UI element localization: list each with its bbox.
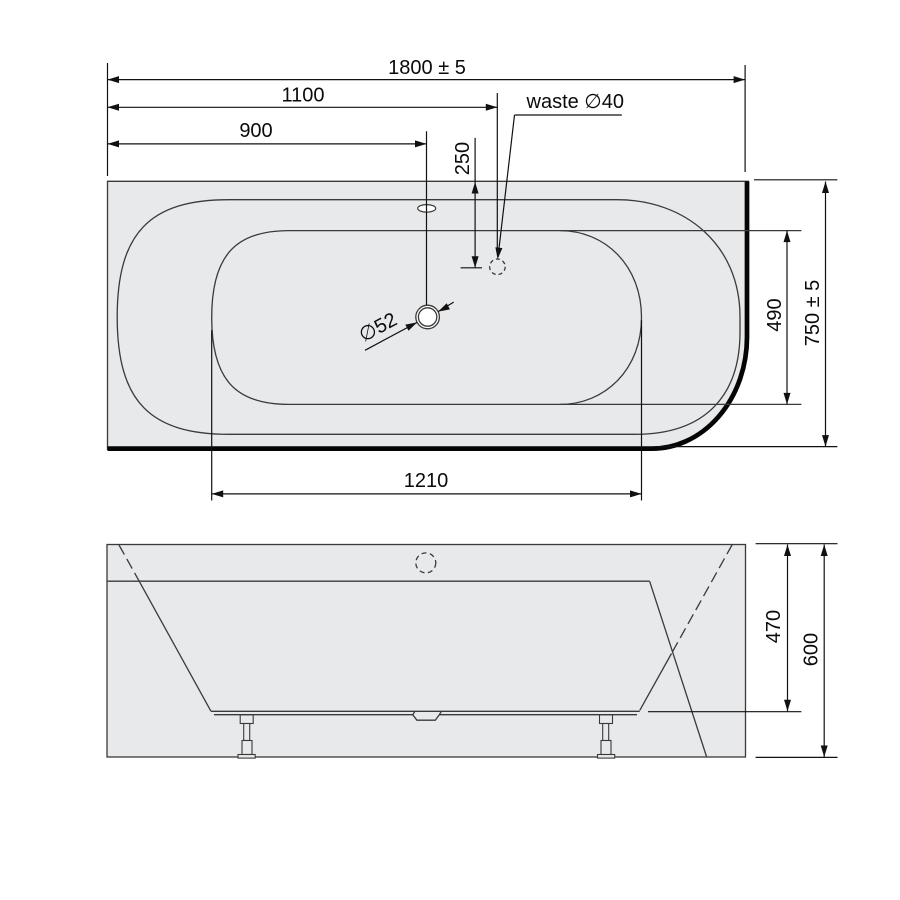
svg-text:250: 250 <box>452 142 474 175</box>
svg-text:waste ∅40: waste ∅40 <box>526 91 624 113</box>
svg-text:470: 470 <box>763 610 785 643</box>
svg-text:1800 ± 5: 1800 ± 5 <box>388 57 466 79</box>
svg-text:900: 900 <box>239 120 272 142</box>
svg-text:1100: 1100 <box>281 84 324 106</box>
svg-text:750 ± 5: 750 ± 5 <box>802 280 824 347</box>
svg-text:490: 490 <box>764 298 786 331</box>
svg-text:1210: 1210 <box>404 470 449 492</box>
svg-text:600: 600 <box>801 633 823 666</box>
